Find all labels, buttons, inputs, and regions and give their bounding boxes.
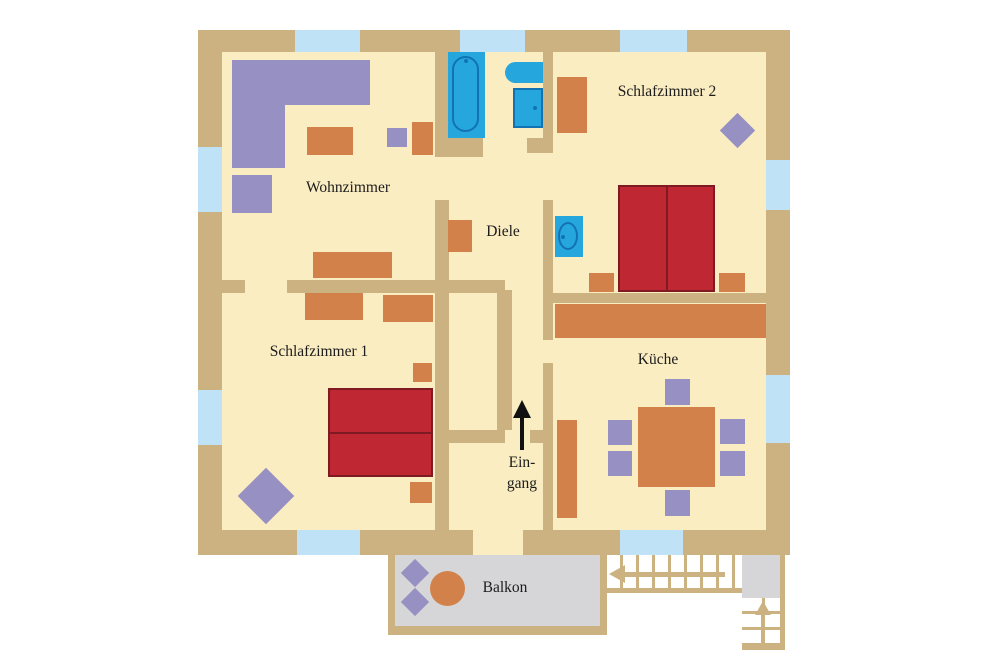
livingroom-bedroom1-wall-stub (222, 280, 245, 293)
hall-cabinet-icon (448, 220, 472, 252)
floor-plan: Wohnzimmer Diele Schlafzimmer 2 Schlafzi… (0, 0, 990, 660)
wardrobe-icon (557, 77, 587, 133)
room-label-diele: Diele (486, 223, 520, 241)
dining-table-icon (638, 407, 715, 487)
room-label-schlafzimmer1: Schlafzimmer 1 (270, 343, 369, 361)
room-label-eingang-line2: gang (507, 475, 537, 493)
kitchen-counter-icon (557, 420, 577, 518)
nightstand-icon (413, 363, 432, 382)
chair-icon (665, 379, 690, 405)
dresser-icon (383, 295, 433, 322)
window-top-3 (620, 30, 687, 52)
window-right-1 (766, 160, 790, 210)
chair-icon (608, 420, 632, 445)
nightstand-icon (589, 273, 614, 292)
stairs-arrow-left-icon (609, 565, 625, 583)
entrance-door-gap (473, 530, 523, 555)
outer-wall-left (198, 30, 222, 555)
window-bottom-2 (620, 530, 683, 555)
window-left-1 (198, 147, 222, 212)
stairs-arrow-left-icon (625, 572, 725, 577)
chair-icon (720, 419, 745, 444)
side-table-icon (387, 128, 407, 147)
sink-icon (505, 62, 543, 83)
stairs-arrow-up-icon (755, 601, 771, 615)
bath-wall-south-east (527, 138, 553, 153)
room-label-wohnzimmer: Wohnzimmer (306, 179, 390, 197)
room-label-eingang-line1: Ein- (509, 454, 536, 472)
hall-wall-west (435, 200, 449, 530)
coffee-table-icon (307, 127, 353, 155)
outer-wall-right (766, 30, 790, 555)
cabinet-icon (412, 122, 433, 155)
window-bottom-1 (297, 530, 360, 555)
nightstand-icon (719, 273, 745, 292)
stairs-arrow-up-icon (761, 612, 765, 644)
sofa-icon (232, 105, 285, 168)
livingroom-bedroom1-wall-main (287, 280, 505, 293)
shaft-wall-east (497, 290, 512, 430)
double-bed-icon (618, 185, 715, 292)
entrance-arrow-icon (513, 400, 531, 418)
window-left-2 (198, 390, 222, 445)
room-label-balkon: Balkon (483, 579, 528, 597)
nightstand-icon (410, 482, 432, 503)
double-bed-icon (328, 388, 433, 477)
room-label-kueche: Küche (638, 351, 678, 369)
bathtub-icon (448, 52, 485, 138)
sofa-icon (232, 60, 370, 105)
room-label-schlafzimmer2: Schlafzimmer 2 (618, 83, 717, 101)
armchair-icon (232, 175, 272, 213)
window-right-2 (766, 375, 790, 443)
window-top-1 (295, 30, 360, 52)
stairs-landing (742, 555, 785, 598)
chair-icon (665, 490, 690, 516)
sideboard-icon (313, 252, 392, 278)
entrance-arrow-icon (520, 417, 524, 450)
chair-icon (720, 451, 745, 476)
window-top-2 (460, 30, 525, 52)
balcony-table-icon (430, 571, 465, 606)
washing-machine-icon (513, 88, 543, 128)
dresser-icon (305, 293, 363, 320)
vestibule-wall-west (449, 430, 505, 443)
bath-wall-south-west (435, 138, 483, 157)
hall-wall-east-lower (543, 363, 553, 530)
hall-wall-east-upper (543, 200, 553, 340)
kitchen-counter-icon (555, 304, 766, 338)
bedroom2-kitchen-wall (553, 293, 766, 303)
chair-icon (608, 451, 632, 476)
vestibule-wall-east (530, 430, 543, 443)
stairs-icon (607, 555, 790, 655)
wall-basin-icon (555, 216, 583, 257)
